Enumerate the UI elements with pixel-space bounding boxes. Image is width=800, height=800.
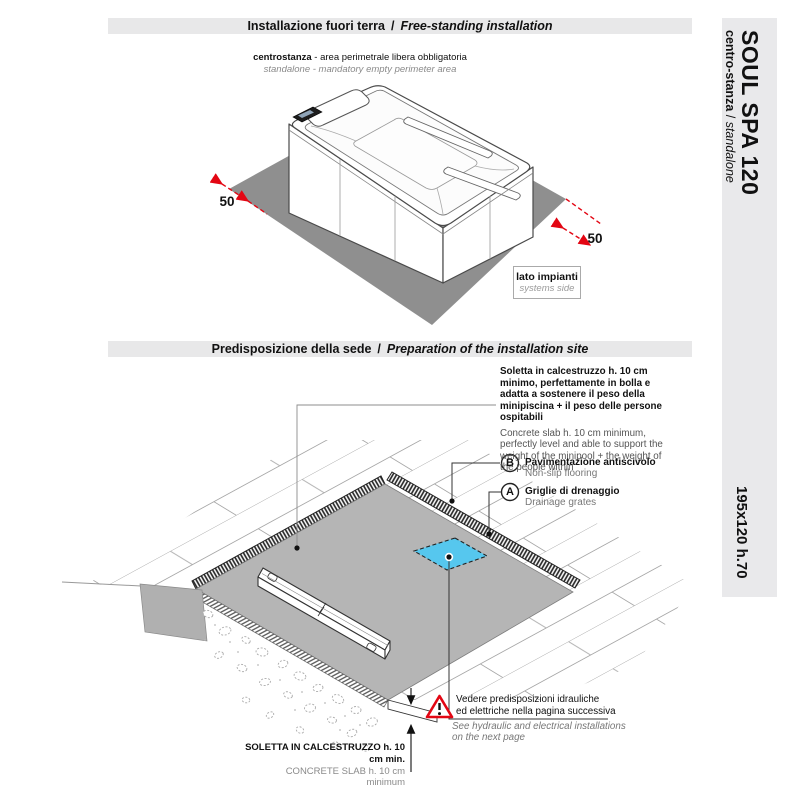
slab-caption-en: CONCRETE SLAB h. 10 cm minimum (245, 766, 405, 788)
header2-separator: / (377, 342, 380, 356)
perimeter-caption-en: standalone - mandatory empty perimeter a… (108, 64, 612, 76)
dimension-label-left: 50 (212, 194, 242, 209)
header2-en: Preparation of the installation site (387, 342, 588, 356)
header2-it: Predisposizione della sede (212, 342, 372, 356)
systems-side-it: lato impianti (514, 271, 580, 283)
slab-caption: SOLETTA IN CALCESTRUZZO h. 10 cm min. CO… (245, 742, 405, 788)
warning-it-2: ed elettriche nella pagina successiva (456, 706, 631, 718)
perimeter-caption: centrostanza - area perimetrale libera o… (108, 52, 612, 75)
warning-en-2: on the next page (452, 732, 632, 743)
header1-it: Installazione fuori terra (247, 19, 385, 33)
callout-letter-a: A (501, 486, 519, 498)
callout-a-it: Griglie di drenaggio (525, 486, 695, 497)
diagram-canvas (0, 0, 800, 800)
warning-note-en: See hydraulic and electrical installatio… (452, 721, 632, 743)
callout-a-en: Drainage grates (525, 497, 695, 508)
warning-note: Vedere predisposizioni idrauliche ed ele… (456, 694, 631, 717)
systems-side-en: systems side (514, 283, 580, 294)
callout-label-a: Griglie di drenaggio Drainage grates (525, 486, 695, 508)
perimeter-caption-it: centrostanza - area perimetrale libera o… (108, 52, 612, 64)
slab-caption-it: SOLETTA IN CALCESTRUZZO h. 10 cm min. (245, 742, 405, 766)
section-header-preparation: Predisposizione della sede / Preparation… (108, 341, 692, 357)
header1-separator: / (391, 19, 394, 33)
manual-page: { "header1": {"it": "Installazione fuori… (0, 0, 800, 800)
callout-label-b: Pavimentazione antiscivolo Non-slip floo… (525, 457, 695, 479)
substrate-step-face (140, 584, 207, 641)
section-header-installation: Installazione fuori terra / Free-standin… (108, 18, 692, 34)
callout-b-en: Non-slip flooring (525, 468, 695, 479)
product-dimensions: 195x120 h.70 (733, 486, 750, 579)
header1-en: Free-standing installation (400, 19, 552, 33)
slab-note-it: Soletta in calcestruzzo h. 10 cm minimo,… (500, 366, 668, 424)
warning-it-1: Vedere predisposizioni idrauliche (456, 694, 631, 706)
dimension-label-right: 50 (580, 231, 610, 246)
callout-letter-b: B (501, 457, 519, 469)
systems-side-label: lato impianti systems side (513, 266, 581, 299)
warning-en-1: See hydraulic and electrical installatio… (452, 721, 632, 732)
callout-b-it: Pavimentazione antiscivolo (525, 457, 695, 468)
